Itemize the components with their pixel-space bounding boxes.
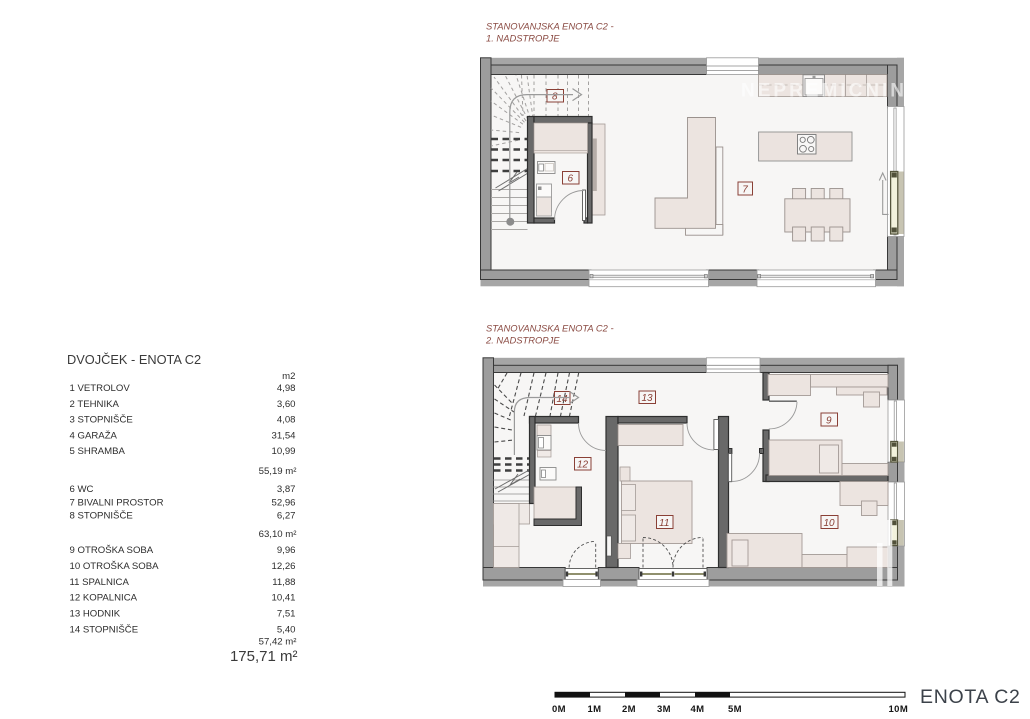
svg-text:1M: 1M: [588, 704, 602, 715]
svg-text:3,87: 3,87: [277, 484, 296, 495]
svg-text:7,51: 7,51: [277, 609, 296, 620]
svg-text:9 OTROŠKA SOBA: 9 OTROŠKA SOBA: [70, 545, 154, 556]
svg-text:5,40: 5,40: [277, 625, 296, 636]
svg-text:DVOJČEK - ENOTA C2: DVOJČEK - ENOTA C2: [67, 352, 201, 367]
svg-text:10M: 10M: [889, 704, 909, 715]
svg-text:3M: 3M: [657, 704, 671, 715]
svg-text:3 STOPNIŠČE: 3 STOPNIŠČE: [70, 415, 133, 426]
svg-text:8 STOPNIŠČE: 8 STOPNIŠČE: [70, 511, 133, 522]
svg-text:63,10 m²: 63,10 m²: [259, 529, 298, 540]
svg-text:ENOTA C2: ENOTA C2: [920, 686, 1021, 708]
svg-text:57,42 m²: 57,42 m²: [259, 637, 298, 648]
svg-text:13 HODNIK: 13 HODNIK: [70, 609, 121, 620]
svg-text:7 BIVALNI PROSTOR: 7 BIVALNI PROSTOR: [70, 497, 164, 508]
svg-text:1. NADSTROPJE: 1. NADSTROPJE: [486, 33, 560, 44]
svg-text:10,41: 10,41: [271, 593, 295, 604]
svg-text:52,96: 52,96: [271, 497, 295, 508]
svg-text:m2: m2: [282, 371, 295, 382]
svg-text:10: 10: [824, 518, 836, 529]
svg-text:14: 14: [557, 394, 569, 405]
svg-text:4M: 4M: [691, 704, 705, 715]
svg-text:55,19 m²: 55,19 m²: [259, 466, 298, 477]
svg-text:NEPREMICNIN: NEPREMICNIN: [741, 81, 907, 102]
svg-text:5 SHRAMBA: 5 SHRAMBA: [70, 446, 126, 457]
svg-text:6,27: 6,27: [277, 511, 296, 522]
svg-text:0M: 0M: [552, 704, 566, 715]
svg-text:2M: 2M: [622, 704, 636, 715]
svg-text:3,60: 3,60: [277, 399, 296, 410]
svg-text:4,08: 4,08: [277, 415, 296, 426]
svg-text:10 OTROŠKA SOBA: 10 OTROŠKA SOBA: [70, 561, 160, 572]
svg-text:14 STOPNIŠČE: 14 STOPNIŠČE: [70, 625, 139, 636]
svg-text:10,99: 10,99: [271, 446, 295, 457]
svg-text:12: 12: [577, 460, 589, 471]
svg-text:175,71 m²: 175,71 m²: [230, 648, 298, 665]
svg-text:12,26: 12,26: [271, 561, 295, 572]
svg-text:2 TEHNIKA: 2 TEHNIKA: [70, 399, 120, 410]
svg-text:9,96: 9,96: [277, 545, 296, 556]
svg-text:4 GARAŽA: 4 GARAŽA: [70, 430, 118, 441]
svg-text:2. NADSTROPJE: 2. NADSTROPJE: [485, 335, 560, 346]
svg-text:6: 6: [568, 174, 574, 185]
svg-text:6 WC: 6 WC: [70, 484, 94, 495]
svg-text:STANOVANJSKA ENOTA C2 -: STANOVANJSKA ENOTA C2 -: [486, 21, 614, 32]
svg-text:5M: 5M: [728, 704, 742, 715]
svg-text:1 VETROLOV: 1 VETROLOV: [70, 383, 131, 394]
svg-text:11 SPALNICA: 11 SPALNICA: [70, 577, 130, 588]
svg-text:STANOVANJSKA ENOTA C2 -: STANOVANJSKA ENOTA C2 -: [486, 323, 614, 334]
svg-text:4,98: 4,98: [277, 383, 296, 394]
svg-text:11,88: 11,88: [272, 577, 295, 588]
svg-text:11: 11: [659, 518, 669, 529]
svg-text:9: 9: [826, 416, 832, 427]
svg-text:7: 7: [742, 184, 748, 195]
svg-text:31,54: 31,54: [271, 430, 296, 441]
svg-text:8: 8: [552, 92, 558, 103]
svg-text:13: 13: [642, 393, 654, 404]
svg-text:12 KOPALNICA: 12 KOPALNICA: [70, 593, 138, 604]
